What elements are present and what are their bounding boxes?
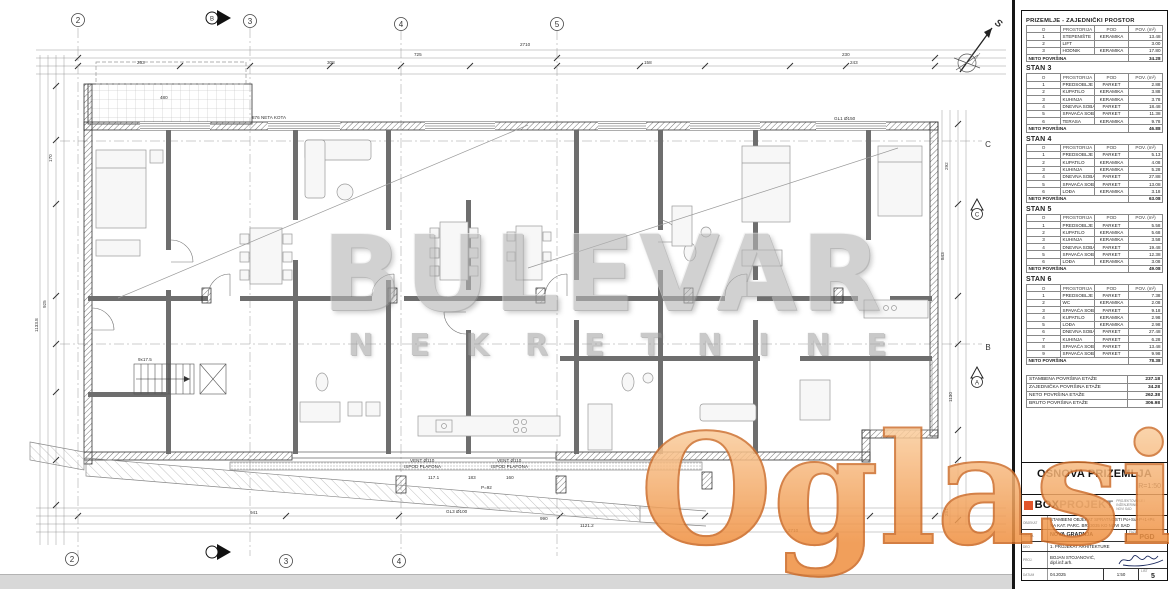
dimension-label: GL3 Ø100 (446, 509, 468, 514)
svg-text:3: 3 (284, 557, 289, 566)
logo-square-icon (1024, 501, 1033, 510)
table-row: 3SPAVAĆA SOBAPARKET9.18 (1027, 307, 1163, 314)
table-row: 2KUPATILOKERAMIKA4.08 (1027, 159, 1163, 166)
table-row: 7KUHINJAPARKET6.28 (1027, 336, 1163, 343)
construction-type: NOVA GRADNJA (1048, 531, 1126, 540)
logo-subtitle: PROJEKTOVANJE I INŽENJERING NOVI SAD (1116, 499, 1165, 511)
summary-row: BRUTO POVRŠINA ETAŽE306.98 (1026, 400, 1163, 408)
object-line2: NA KAT. PARC. BR. 3035 KO NOVI SAD (1050, 523, 1130, 528)
table-row: 1STEPENIŠTEKERAMIKA13.48 (1027, 33, 1163, 40)
staircase (134, 364, 226, 394)
titleblock-row-date: DATUM 04.2025 1:50 LIST 5 (1022, 569, 1167, 580)
table-header-row: OPROSTORIJAPODPOV. (m²) (1027, 214, 1163, 221)
table-header-row: OPROSTORIJAPODPOV. (m²) (1027, 74, 1163, 81)
logo-subtitle-line1: PROJEKTOVANJE I INŽENJERING (1116, 499, 1145, 507)
room-table: OPROSTORIJAPODPOV. (m²)1PREDSOBLJEPARKET… (1026, 73, 1163, 132)
row-label: VRSTA (1022, 530, 1048, 541)
table-row: 3KUHINJAKERAMIKA5.28 (1027, 166, 1163, 173)
dimension-label: 925 (42, 300, 47, 308)
date-value: 04.2025 (1048, 571, 1103, 579)
dimension-label: 725 (414, 52, 422, 57)
object-description: STAMBENI OBJEKAT SPRATNOSTI Po+Su+P+1+Ps… (1048, 516, 1167, 529)
table-row: 3KUHINJAKERAMIKA3.58 (1027, 236, 1163, 243)
north-arrow-icon: S (954, 17, 1004, 72)
neto-row: NETO POVRŠINA49.08 (1027, 265, 1163, 272)
sheet-number-cell: LIST 5 (1138, 569, 1167, 580)
table-row: 1PREDSOBLJEPARKET5.13 (1027, 151, 1163, 158)
table-title: STAN 3 (1026, 65, 1163, 72)
table-row: 5SPAVAĆA SOBAPARKET12.38 (1027, 251, 1163, 258)
title-sheet: PRIZEMLJE - ZAJEDNIČKI PROSTOROPROSTORIJ… (1012, 0, 1169, 589)
logo-subtitle-line2: NOVI SAD (1116, 507, 1131, 511)
drawing-title: OSNOVA PRIZEMLJA (1024, 468, 1165, 480)
dimension-label: 170 (48, 154, 53, 162)
table-row: 5SPAVAĆA SOBAPARKET11.38 (1027, 110, 1163, 117)
table-row: 8SPAVAĆA SOBAPARKET13.48 (1027, 343, 1163, 350)
titleblock-row-type: VRSTA NOVA GRADNJA FAZA PGD (1022, 530, 1167, 542)
summary-row: NETO POVRŠINA ETAŽE262.38 (1026, 392, 1163, 400)
dimension-label: 243 (850, 60, 858, 65)
page-edge-strip (0, 574, 1012, 589)
scale-short: 1:50 (1103, 569, 1138, 580)
drawing-title-box: OSNOVA PRIZEMLJA R=1:50 (1022, 463, 1167, 495)
summary-row: ZAJEDNIČKA POVRŠINA ETAŽE34.28 (1026, 384, 1163, 392)
dimension-label: 263 (137, 60, 145, 65)
boxprojekt-logo: BOX PROJEKT PROJEKTOVANJE I INŽENJERING … (1022, 495, 1167, 516)
table-row: 1PREDSOBLJEPARKET5.58 (1027, 222, 1163, 229)
dimension-label: 9x17.5 (138, 357, 152, 362)
table-row: 6DNEVNA SOBAPARKET27.48 (1027, 328, 1163, 335)
dimension-label: VENT Ø110 (410, 458, 435, 463)
row-label: OBJEKAT (1022, 516, 1048, 529)
dimension-label: P=92 (481, 485, 492, 490)
dimension-label: 843 (940, 252, 945, 260)
svg-text:B: B (985, 343, 990, 352)
svg-text:B: B (210, 17, 214, 23)
svg-text:A: A (975, 381, 979, 387)
logo-text-box: BOX (1035, 499, 1060, 511)
svg-text:2: 2 (76, 16, 81, 25)
table-title: PRIZEMLJE - ZAJEDNIČKI PROSTOR (1026, 18, 1163, 24)
table-row: 1PREDSOBLJEPARKET2.88 (1027, 81, 1163, 88)
svg-text:4: 4 (399, 20, 404, 29)
dimension-label: 308 (327, 60, 335, 65)
svg-text:4: 4 (397, 557, 402, 566)
table-row: 5SPAVAĆA SOBAPARKET13.08 (1027, 181, 1163, 188)
row-label: DEO (1022, 542, 1048, 551)
titleblock-row-part: DEO 1. PROJEKAT ARHITEKTURE (1022, 542, 1167, 552)
dimension-label: 1133.8 (34, 318, 39, 332)
area-tables: PRIZEMLJE - ZAJEDNIČKI PROSTOROPROSTORIJ… (1026, 18, 1163, 365)
dimension-label: 1130 (948, 392, 953, 402)
table-row: 2LIFT3.00 (1027, 40, 1163, 47)
dimension-label: 941 (250, 510, 258, 515)
room-table: OPROSTORIJAPODPOV. (m²)1PREDSOBLJEPARKET… (1026, 284, 1163, 365)
sheet-frame: PRIZEMLJE - ZAJEDNIČKI PROSTOROPROSTORIJ… (1021, 10, 1168, 581)
neto-row: NETO POVRŠINA34.28 (1027, 55, 1163, 62)
table-row: 2KUPATILOKERAMIKA5.68 (1027, 229, 1163, 236)
dimension-label: 160 (506, 475, 514, 480)
neto-row: NETO POVRŠINA46.88 (1027, 125, 1163, 132)
title-block: OSNOVA PRIZEMLJA R=1:50 BOX PROJEKT PROJ… (1022, 462, 1167, 580)
dimension-label: 183 (468, 475, 476, 480)
table-row: 2KUPATILOKERAMIKA3.88 (1027, 88, 1163, 95)
dimension-label: 281 (944, 508, 949, 516)
dimension-label: 117.1 (428, 475, 440, 480)
dimension-label: 292 (944, 162, 949, 170)
screenshot-root: 2 3 4 5 2 3 4 C B B C A (0, 0, 1169, 589)
dimension-label: VENT Ø110 (497, 458, 522, 463)
table-row: 1PREDSOBLJEPARKET7.38 (1027, 292, 1163, 299)
table-title: STAN 6 (1026, 276, 1163, 283)
dimension-label: GL1 Ø150 (834, 116, 856, 121)
svg-text:2: 2 (70, 555, 75, 564)
floor-plan-drawing: 2 3 4 5 2 3 4 C B B C A (0, 0, 1012, 589)
dimension-label: 2710 (788, 528, 799, 533)
dimension-label: 876 NETA KOTA (252, 115, 287, 120)
table-row: 4DNEVNA SOBAPARKET27.88 (1027, 173, 1163, 180)
table-header-row: OPROSTORIJAPODPOV. (m²) (1027, 285, 1163, 292)
summary-table: STAMBENA POVRŠINA ETAŽE237.18ZAJEDNIČKA … (1026, 375, 1163, 408)
table-row: 2WCKERAMIKA2.08 (1027, 299, 1163, 306)
project-part: 1. PROJEKAT ARHITEKTURE (1048, 543, 1167, 551)
doors (92, 220, 747, 334)
room-table: OPROSTORIJAPODPOV. (m²)1PREDSOBLJEPARKET… (1026, 214, 1163, 273)
room-table: OPROSTORIJAPODPOV. (m²)1PREDSOBLJEPARKET… (1026, 144, 1163, 203)
dimension-label: 1121.2 (580, 523, 594, 528)
phase-value: PGD (1127, 534, 1167, 541)
svg-text:S: S (992, 17, 1004, 30)
section-markers: B C A (206, 10, 983, 560)
neto-row: NETO POVRŠINA78.38 (1027, 357, 1163, 364)
signature (1117, 552, 1165, 568)
phase-cell: FAZA PGD (1126, 530, 1167, 541)
svg-text:C: C (985, 140, 991, 149)
object-line1: STAMBENI OBJEKAT SPRATNOSTI Po+Su+P+1+Ps (1050, 517, 1155, 522)
dimension-label: 230 (842, 52, 850, 57)
dimension-label: 158 (644, 60, 652, 65)
dimension-label: ISPOD PLAFONA (404, 464, 442, 469)
table-row: 6LOĐAKERAMIKA3.08 (1027, 258, 1163, 265)
table-title: STAN 5 (1026, 206, 1163, 213)
table-row: 4DNEVNA SOBAPARKET18.48 (1027, 103, 1163, 110)
dimension-label: 2710 (520, 42, 531, 47)
table-row: 4KUPATILOKERAMIKA2.98 (1027, 314, 1163, 321)
titleblock-row-designer: PROJ. BOJAN STOJANOVIĆ, dipl.inž.arh. (1022, 552, 1167, 569)
table-header-row: OPROSTORIJAPODPOV. (m²) (1027, 144, 1163, 151)
row-label: PROJ. (1022, 552, 1048, 568)
logo-text-projekt: PROJEKT (1059, 499, 1113, 511)
dimension-label: ISPOD PLAFONA (491, 464, 529, 469)
titleblock-row-object: OBJEKAT STAMBENI OBJEKAT SPRATNOSTI Po+S… (1022, 516, 1167, 530)
dimension-label: 480 (160, 95, 168, 100)
neto-row: NETO POVRŠINA63.08 (1027, 195, 1163, 202)
drawing-scale: R=1:50 (1024, 480, 1165, 492)
table-row: 5LOĐAKERAMIKA2.98 (1027, 321, 1163, 328)
summary-row: STAMBENA POVRŠINA ETAŽE237.18 (1026, 375, 1163, 384)
table-row: 6TERASAKERAMIKA9.78 (1027, 118, 1163, 125)
table-title: STAN 4 (1026, 136, 1163, 143)
dimension-label: 990 (540, 516, 548, 521)
sheet-number: 5 (1139, 573, 1167, 580)
table-row: 4DNEVNA SOBAPARKET19.48 (1027, 244, 1163, 251)
designer-name: BOJAN STOJANOVIĆ, dipl.inž.arh. (1048, 554, 1117, 567)
svg-text:3: 3 (248, 17, 253, 26)
svg-text:5: 5 (555, 20, 560, 29)
table-row: 3HODNIKKERAMIKA17.80 (1027, 47, 1163, 54)
table-row: 9SPAVAĆA SOBAPARKET9.98 (1027, 350, 1163, 357)
row-label: DATUM (1022, 569, 1048, 580)
table-row: 6LOĐAKERAMIKA3.18 (1027, 188, 1163, 195)
svg-text:C: C (975, 213, 980, 219)
room-table: OPROSTORIJAPODPOV. (m²)1STEPENIŠTEKERAMI… (1026, 25, 1163, 62)
table-header-row: OPROSTORIJAPODPOV. (m²) (1027, 26, 1163, 33)
table-row: 3KUHINJAKERAMIKA3.78 (1027, 96, 1163, 103)
